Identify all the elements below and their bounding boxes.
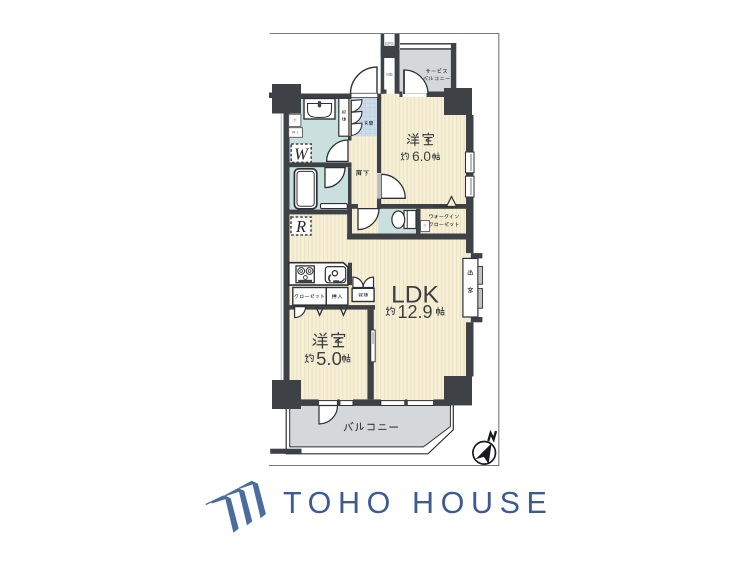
svg-text:EPS: EPS	[385, 41, 394, 46]
svg-text:5.0: 5.0	[316, 348, 342, 369]
svg-text:TOHO HOUSE: TOHO HOUSE	[283, 486, 554, 520]
svg-text:6.0: 6.0	[412, 149, 431, 164]
svg-text:R: R	[295, 217, 306, 236]
svg-text:MB: MB	[386, 72, 392, 77]
svg-text:12.9: 12.9	[397, 302, 432, 322]
svg-text:W: W	[294, 144, 309, 163]
